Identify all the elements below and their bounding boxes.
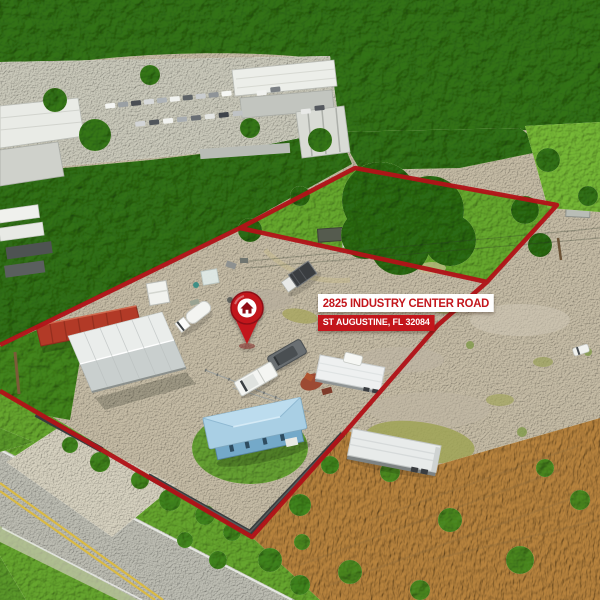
address-banner: 2825 INDUSTRY CENTER ROAD ST AUGUSTINE, … [318, 294, 505, 331]
storage-shed [146, 280, 170, 305]
address-line-2: ST AUGUSTINE, FL 32084 [318, 315, 435, 330]
aerial-listing-photo: 2825 INDUSTRY CENTER ROAD ST AUGUSTINE, … [0, 0, 600, 600]
address-line-1: 2825 INDUSTRY CENTER ROAD [318, 294, 494, 312]
aerial-photo-scene [0, 0, 600, 600]
